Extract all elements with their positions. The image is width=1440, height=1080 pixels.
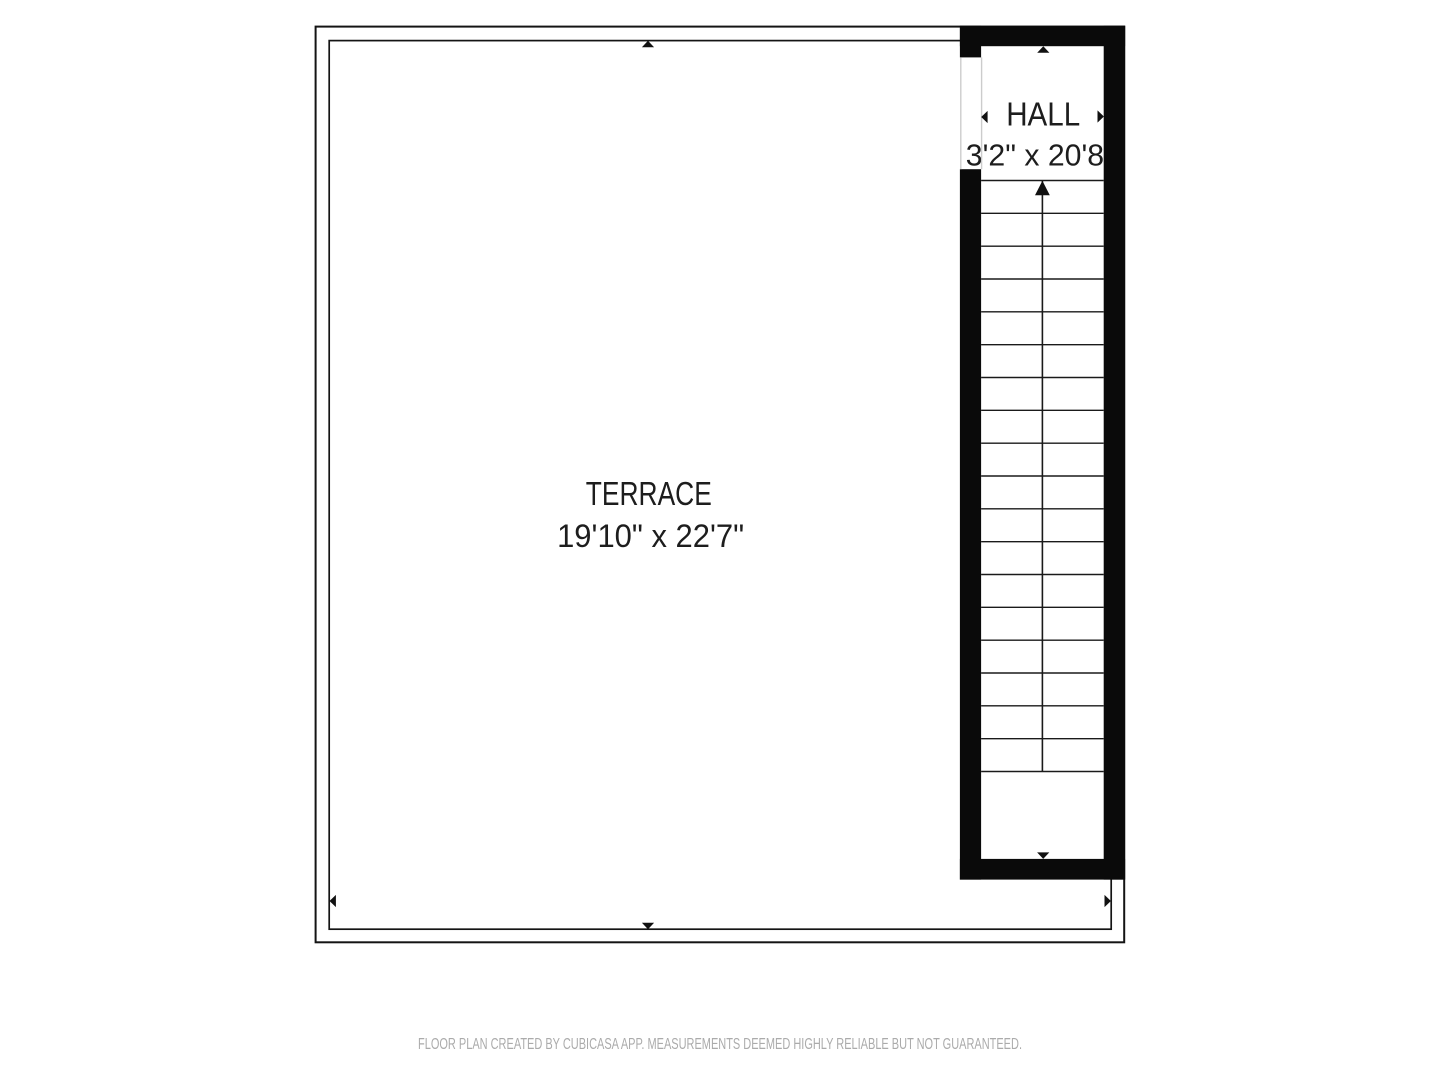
svg-text:3'2" x 20'8": 3'2" x 20'8" <box>966 137 1115 172</box>
svg-text:TERRACE: TERRACE <box>586 475 712 512</box>
svg-text:19'10" x 22'7": 19'10" x 22'7" <box>557 518 744 554</box>
svg-text:FLOOR PLAN CREATED BY CUBICASA: FLOOR PLAN CREATED BY CUBICASA APP. MEAS… <box>418 1036 1022 1053</box>
svg-text:HALL: HALL <box>1006 96 1080 133</box>
